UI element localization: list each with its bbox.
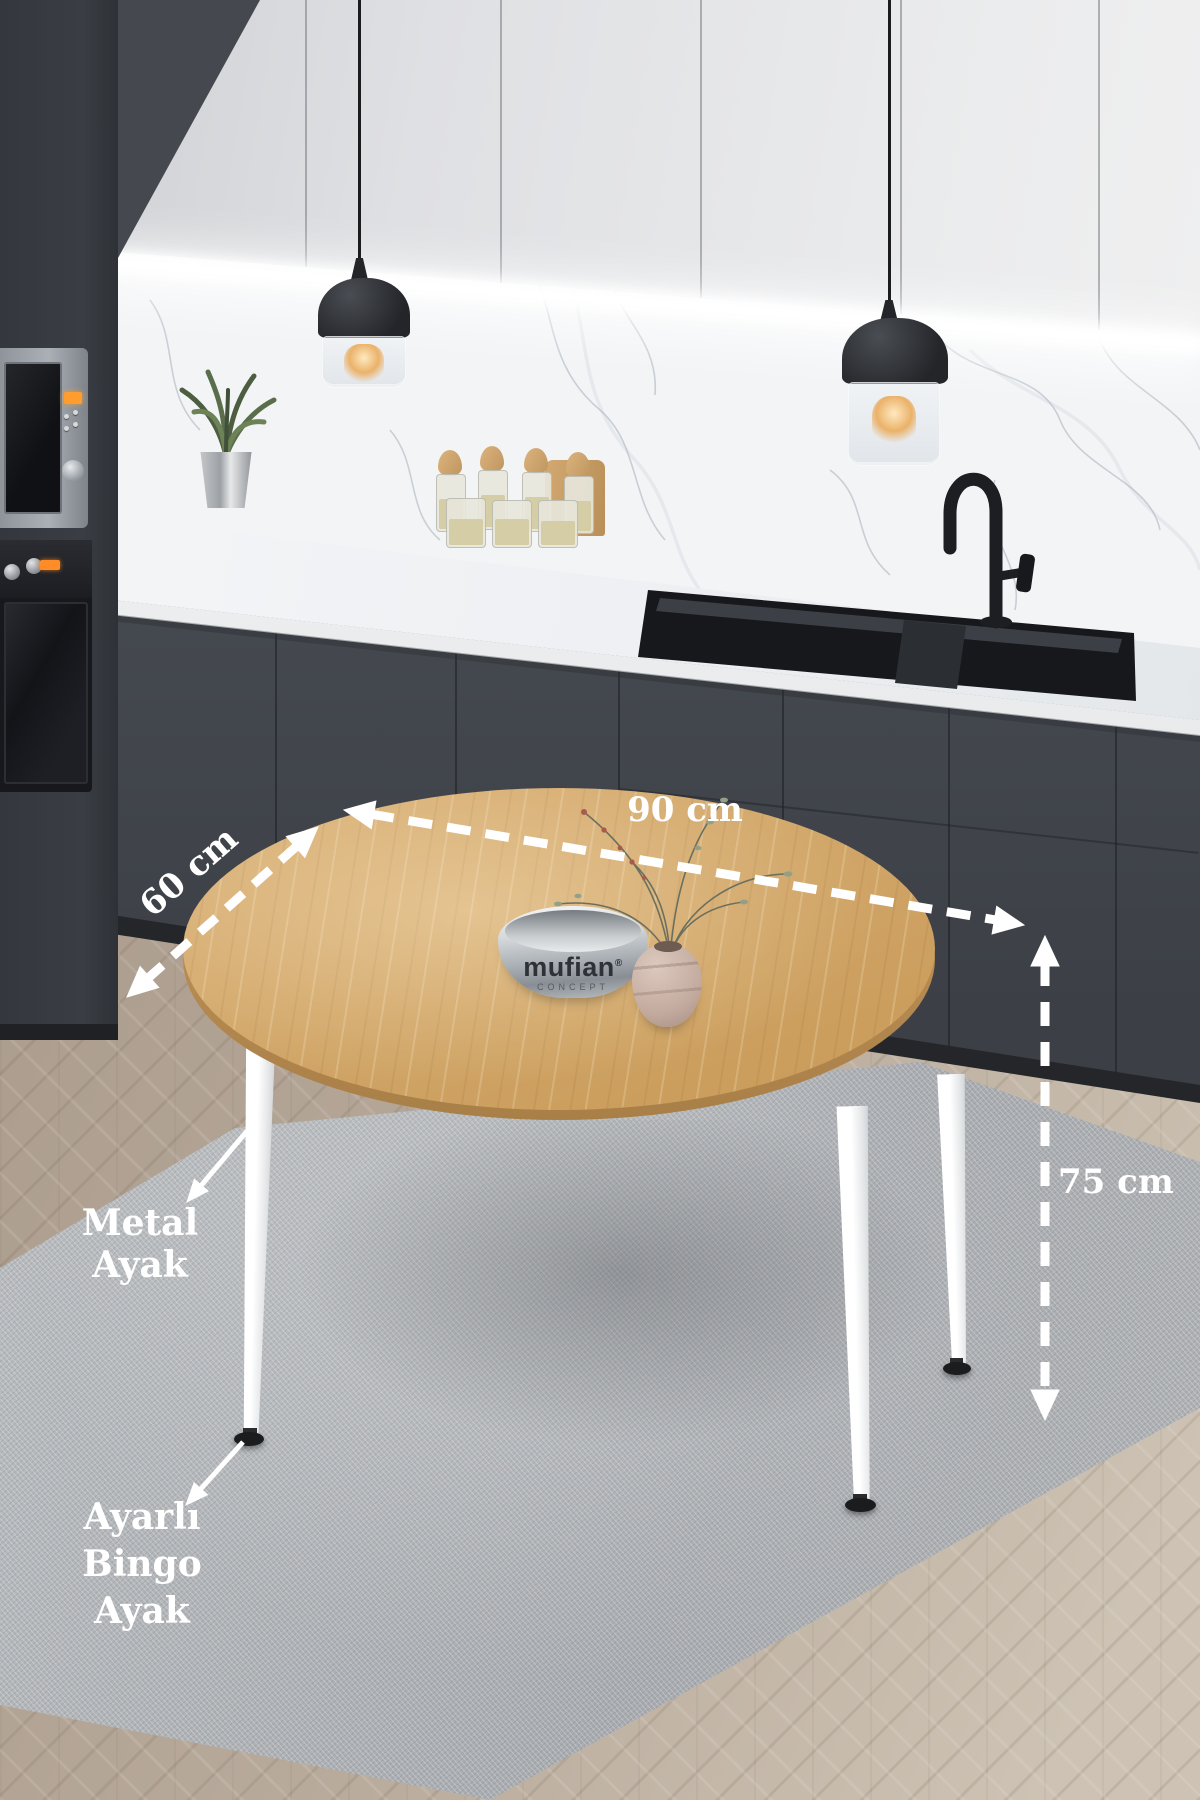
- height-arrowhead-bottom: [1031, 1390, 1059, 1420]
- width-dimension-label: 90 cm: [595, 790, 775, 830]
- kitchen-product-photo: mufian® CONCEPT 90 cm 60 cm 75 cm: [0, 0, 1200, 1800]
- width-arrowhead-left: [344, 801, 376, 829]
- width-arrowhead-right: [992, 906, 1024, 934]
- adjustable-foot-pointer-line: [198, 1442, 243, 1492]
- adjustable-foot-label: Ayarlı Bingo Ayak: [22, 1494, 262, 1634]
- height-dimension-label: 75 cm: [1058, 1162, 1200, 1202]
- adjustable-foot-label-line2: Ayak: [22, 1588, 262, 1635]
- metal-leg-label: Metal Ayak: [28, 1202, 252, 1286]
- height-arrowhead-top: [1031, 936, 1059, 966]
- adjustable-foot-label-line1: Ayarlı Bingo: [22, 1494, 262, 1588]
- metal-leg-pointer-line: [199, 1131, 247, 1188]
